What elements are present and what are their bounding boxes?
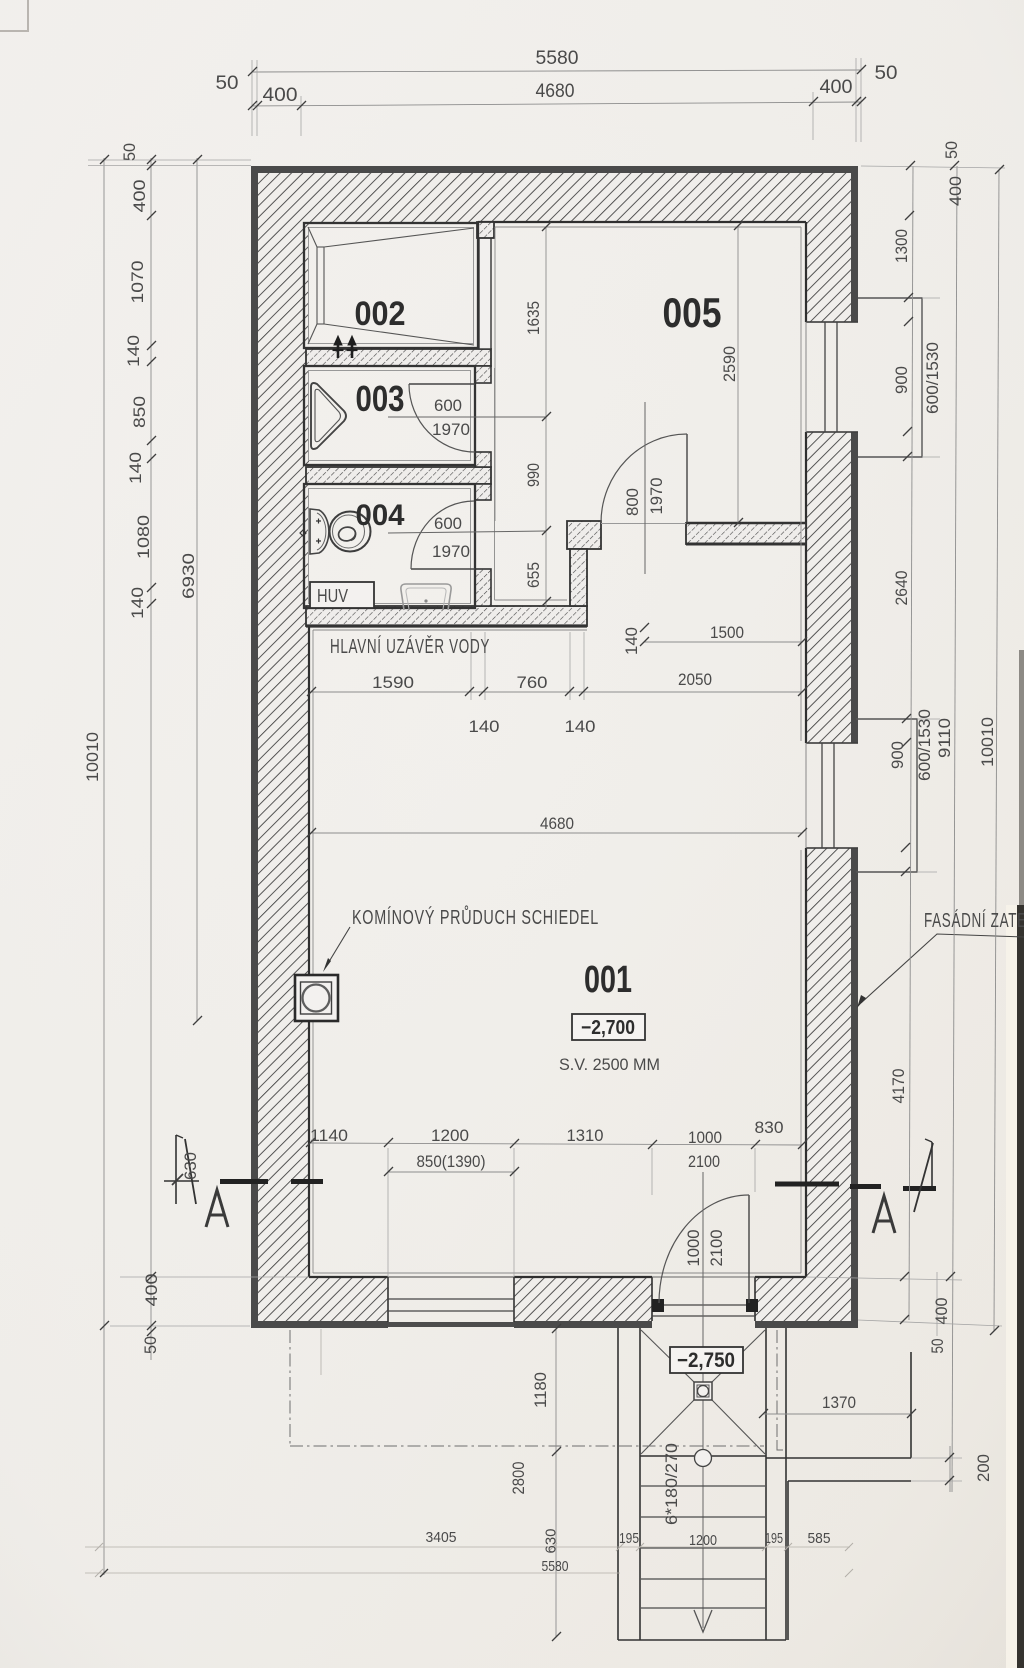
- svg-text:5580: 5580: [542, 1558, 569, 1575]
- svg-text:830: 830: [755, 1118, 784, 1137]
- svg-text:140: 140: [124, 335, 143, 367]
- svg-text:004: 004: [356, 499, 405, 532]
- svg-text:1370: 1370: [822, 1393, 856, 1412]
- svg-text:1140: 1140: [310, 1126, 348, 1145]
- svg-text:2640: 2640: [892, 571, 911, 606]
- svg-text:2100: 2100: [688, 1152, 720, 1171]
- svg-text:1635: 1635: [524, 301, 543, 335]
- svg-text:005: 005: [663, 289, 722, 336]
- svg-text:600: 600: [434, 396, 462, 415]
- svg-text:2050: 2050: [678, 670, 712, 689]
- svg-text:760: 760: [517, 673, 548, 692]
- svg-text:2800: 2800: [509, 1462, 528, 1495]
- svg-text:400: 400: [263, 85, 298, 106]
- svg-text:400: 400: [142, 1274, 161, 1307]
- svg-text:140: 140: [126, 452, 145, 484]
- svg-text:2100: 2100: [707, 1230, 726, 1267]
- svg-text:50: 50: [141, 1336, 160, 1354]
- svg-text:001: 001: [584, 959, 632, 1001]
- svg-text:KOMÍNOVÝ PRŮDUCH SCHIEDEL: KOMÍNOVÝ PRŮDUCH SCHIEDEL: [352, 905, 599, 929]
- svg-text:1070: 1070: [128, 261, 147, 304]
- svg-text:1200: 1200: [431, 1126, 469, 1145]
- svg-text:4680: 4680: [540, 814, 574, 833]
- svg-text:50: 50: [216, 73, 239, 94]
- svg-text:400: 400: [130, 180, 149, 213]
- svg-text:195: 195: [765, 1530, 783, 1547]
- svg-text:200: 200: [974, 1454, 993, 1482]
- svg-text:140: 140: [128, 587, 147, 619]
- svg-text:1180: 1180: [531, 1372, 550, 1408]
- svg-text:400: 400: [932, 1298, 951, 1325]
- svg-text:4680: 4680: [536, 81, 575, 102]
- svg-text:1000: 1000: [684, 1230, 703, 1267]
- svg-text:10010: 10010: [978, 717, 997, 767]
- svg-text:600/1530: 600/1530: [923, 342, 942, 414]
- svg-text:990: 990: [524, 463, 543, 487]
- svg-text:1590: 1590: [372, 673, 414, 692]
- svg-text:−2,750: −2,750: [677, 1349, 735, 1372]
- svg-text:140: 140: [622, 627, 641, 655]
- svg-text:2590: 2590: [720, 346, 739, 382]
- svg-text:HUV: HUV: [317, 586, 348, 606]
- svg-text:HLAVNÍ UZÁVĚR VODY: HLAVNÍ UZÁVĚR VODY: [330, 635, 490, 658]
- svg-text:50: 50: [942, 141, 961, 159]
- svg-text:9110: 9110: [935, 718, 954, 758]
- svg-text:5580: 5580: [536, 48, 579, 69]
- svg-text:600/1530: 600/1530: [915, 709, 934, 781]
- svg-text:FASÁDNÍ ZATEPLENÍ: FASÁDNÍ ZATEPLENÍ: [924, 909, 1024, 932]
- svg-text:1970: 1970: [432, 542, 470, 561]
- svg-text:1970: 1970: [647, 478, 666, 515]
- svg-text:50: 50: [928, 1339, 947, 1354]
- svg-text:140: 140: [565, 717, 596, 736]
- svg-text:002: 002: [355, 295, 406, 333]
- svg-text:195: 195: [619, 1530, 639, 1547]
- svg-text:50: 50: [120, 143, 139, 161]
- svg-text:850(1390): 850(1390): [417, 1152, 486, 1171]
- svg-text:1970: 1970: [432, 420, 470, 439]
- svg-text:50: 50: [875, 63, 898, 84]
- svg-text:4170: 4170: [889, 1069, 908, 1104]
- svg-text:900: 900: [888, 741, 907, 769]
- svg-text:1000: 1000: [688, 1128, 722, 1147]
- svg-text:6930: 6930: [179, 553, 198, 599]
- svg-text:1310: 1310: [567, 1126, 604, 1145]
- svg-text:S.V. 2500 MM: S.V. 2500 MM: [559, 1055, 660, 1074]
- svg-text:585: 585: [808, 1530, 831, 1547]
- svg-text:400: 400: [946, 176, 965, 206]
- svg-text:140: 140: [469, 717, 500, 736]
- svg-text:6*180/270: 6*180/270: [662, 1443, 681, 1525]
- svg-text:−2,700: −2,700: [581, 1017, 635, 1039]
- svg-text:630: 630: [542, 1529, 559, 1554]
- svg-text:3405: 3405: [426, 1529, 457, 1546]
- svg-text:1500: 1500: [710, 623, 744, 642]
- svg-text:003: 003: [356, 378, 405, 419]
- svg-text:630: 630: [181, 1152, 200, 1180]
- svg-text:1200: 1200: [689, 1532, 717, 1549]
- svg-text:1080: 1080: [134, 515, 153, 559]
- svg-text:1300: 1300: [892, 229, 911, 263]
- svg-text:850: 850: [130, 396, 149, 428]
- svg-text:400: 400: [820, 77, 853, 98]
- svg-text:900: 900: [892, 366, 911, 394]
- svg-text:655: 655: [524, 562, 543, 588]
- svg-text:10010: 10010: [83, 732, 102, 782]
- svg-text:800: 800: [623, 488, 642, 516]
- svg-text:600: 600: [434, 514, 462, 533]
